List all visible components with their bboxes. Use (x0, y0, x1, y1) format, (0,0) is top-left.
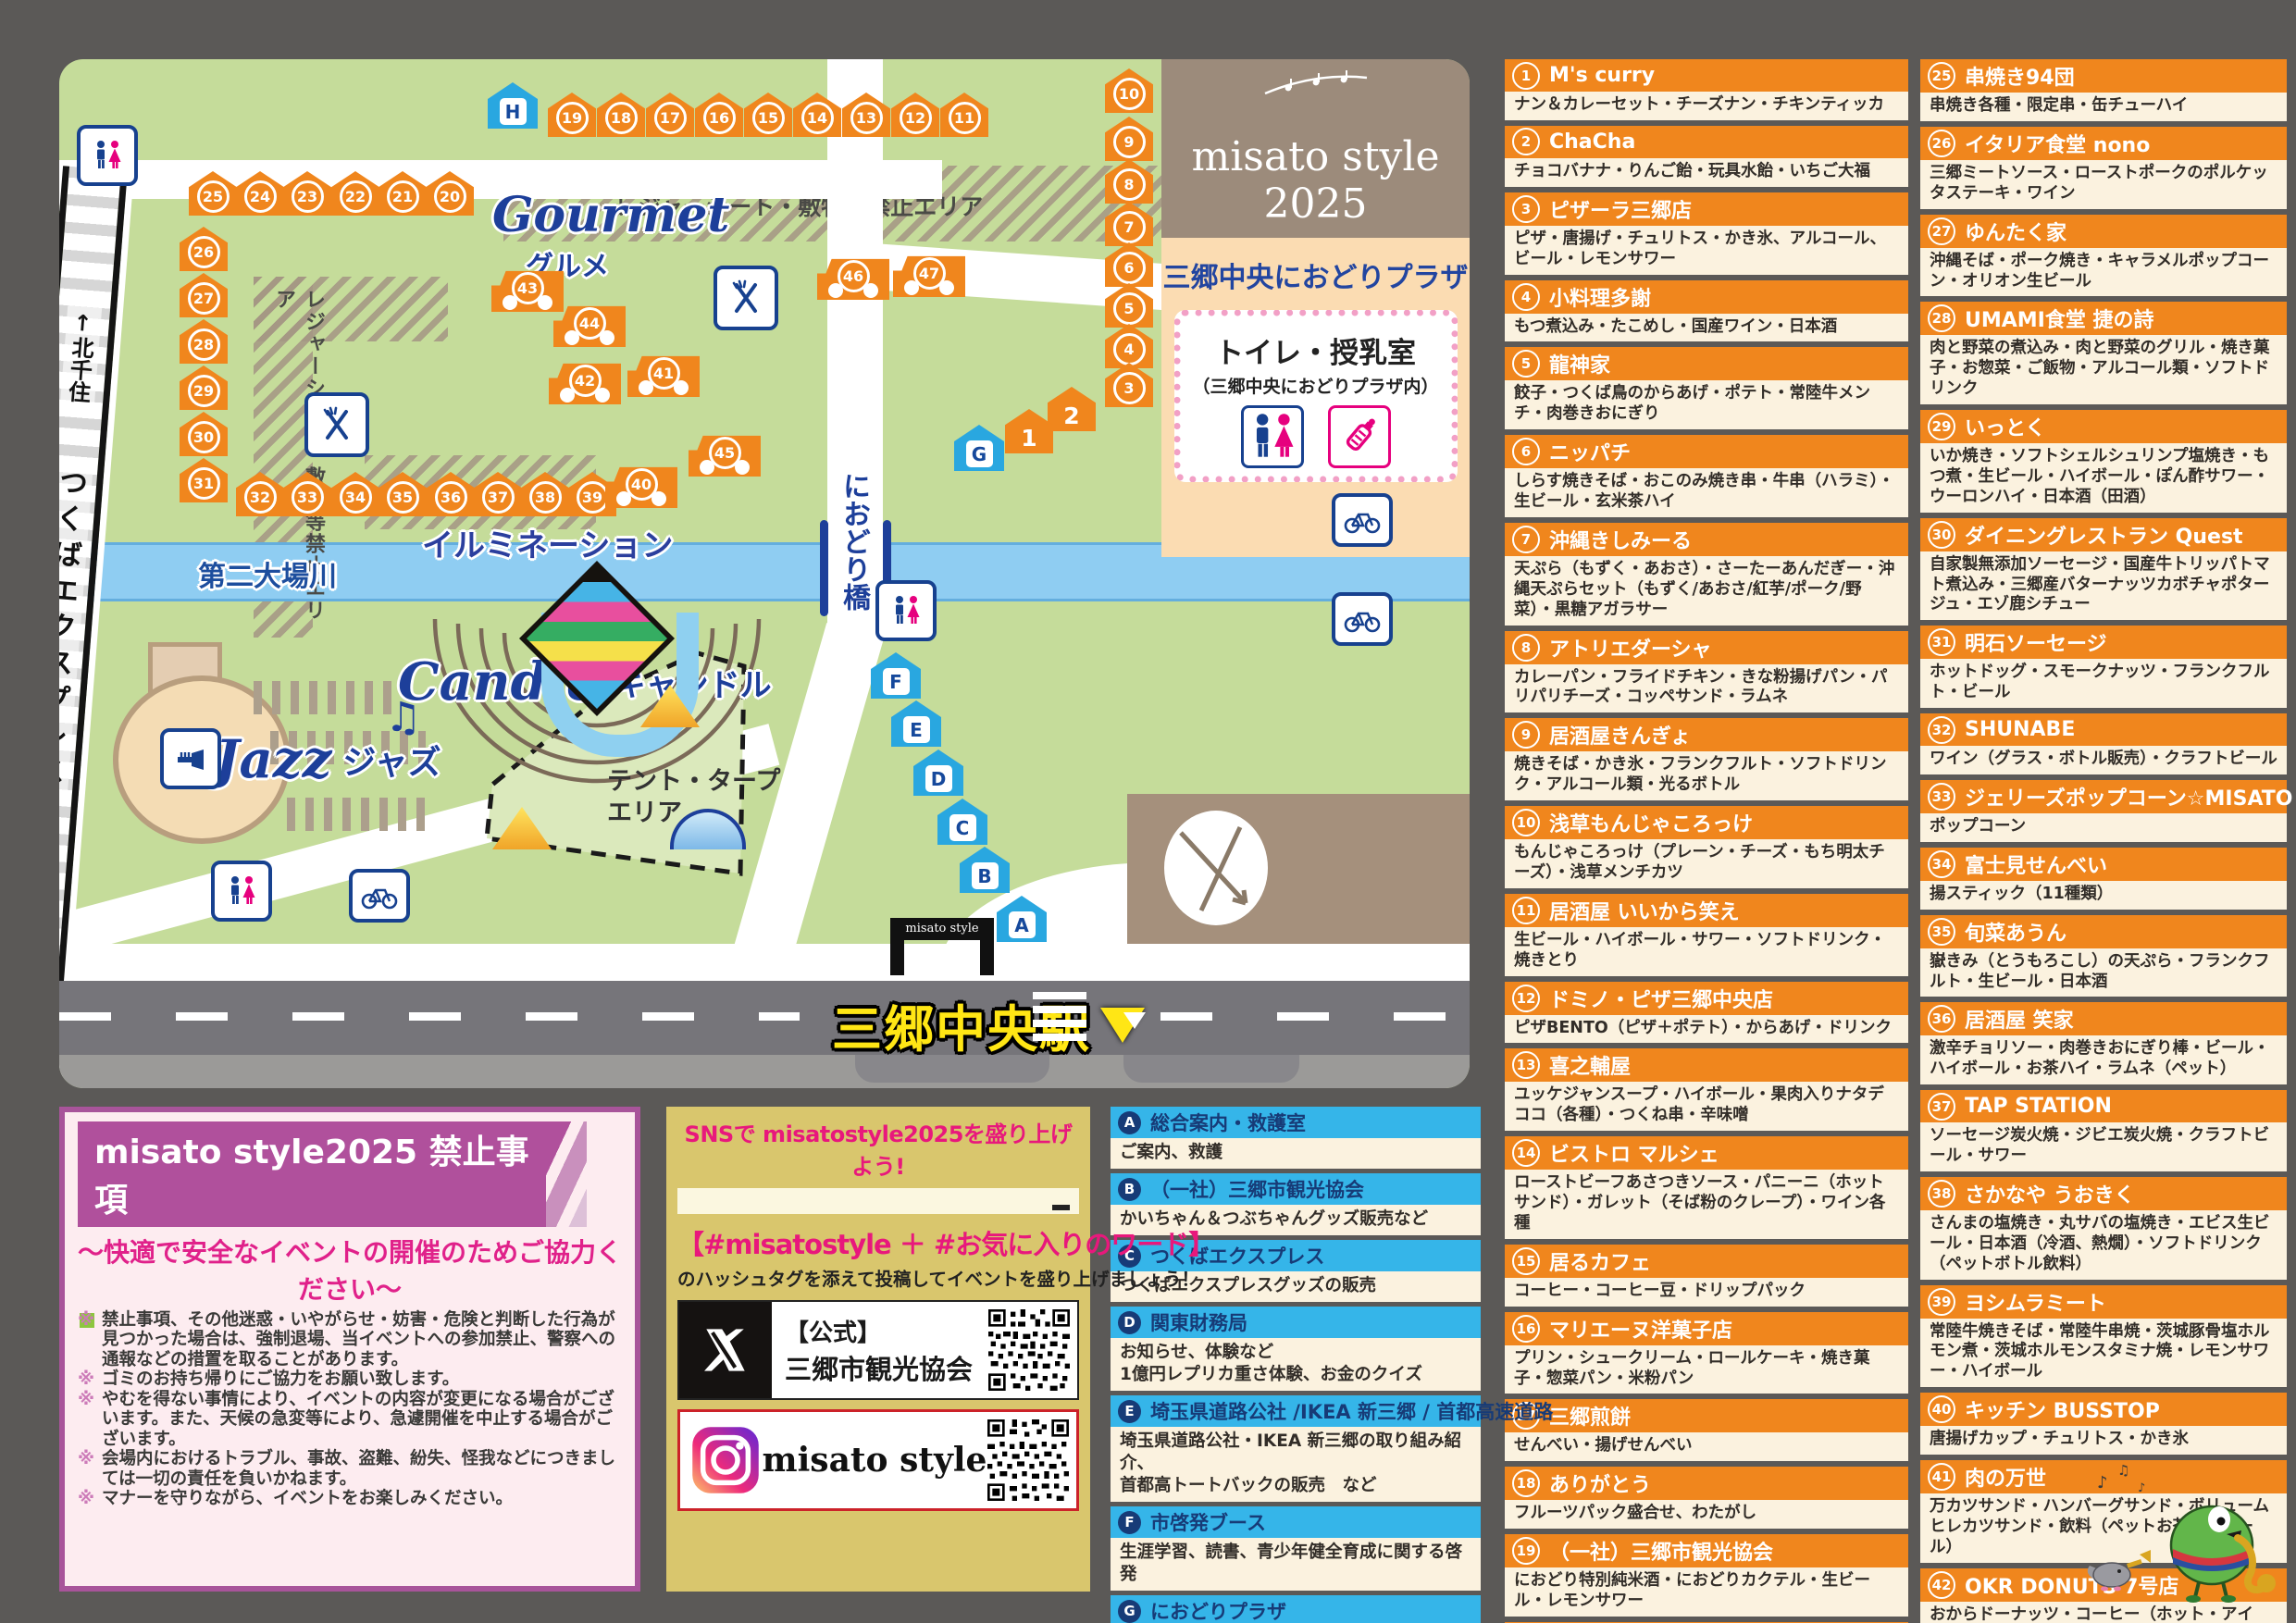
vendor-menu: ピザBENTO（ピザ＋ポテト）・からあげ・ドリンク (1505, 1015, 1908, 1044)
vendor-menu: 唐揚げカップ・チュリトス・かき氷 (1920, 1426, 2287, 1455)
booth-letter-badge: F (1118, 1511, 1141, 1534)
booth-list: A 総合案内・救護室 ご案内、救護 B （一社）三郷市観光協会 かいちゃん＆つぶ… (1111, 1107, 1481, 1623)
svg-text:♫: ♫ (2117, 1462, 2129, 1479)
prohibited-title: misato style2025 禁止事項 (78, 1121, 546, 1227)
prohibited-panel: misato style2025 禁止事項 ～快適で安全なイベントの開催のためご… (59, 1107, 640, 1592)
vendor-item: 31 明石ソーセージ ホットドッグ・スモークナッツ・フランクフルト・ビール (1920, 626, 2287, 708)
stall-number: 22 (340, 180, 372, 213)
arrow-up-icon: ↑ (68, 309, 96, 337)
stall-number: 8 (1113, 168, 1146, 201)
booth-letter-badge: A (1118, 1111, 1141, 1134)
svg-text:♪: ♪ (2138, 1481, 2145, 1495)
vendor-name: 肉の万世 (1965, 1462, 2046, 1492)
map-title-block: misato style 2025 会場図 (1161, 59, 1470, 238)
stall-marker: D (913, 750, 963, 796)
vendor-number-badge: 18 (1512, 1469, 1540, 1497)
vendor-item: 6 ニッパチ しらす焼きそば・おこのみ焼き串・牛串（ハラミ）・生ビール・玄米茶ハ… (1505, 435, 1908, 517)
nursing-bottle-icon (1328, 405, 1391, 468)
note-marker: ※ (78, 1449, 94, 1468)
vendor-name: ピザーラ三郷店 (1549, 194, 1692, 224)
vendor-number-badge: 5 (1512, 350, 1540, 378)
stall-number: 44 (574, 307, 606, 340)
vendor-name: 居酒屋 いいから笑え (1549, 896, 1740, 925)
lane-dashes-right (1160, 1012, 1470, 1021)
booth-name: 総合案内・救護室 (1150, 1109, 1306, 1136)
vendor-number-badge: 40 (1928, 1395, 1955, 1423)
stall-number: 36 (435, 481, 467, 514)
vendor-number-badge: 6 (1512, 438, 1540, 465)
vendor-name: ありがとう (1549, 1468, 1651, 1498)
vendor-name: 富士見せんべい (1965, 849, 2107, 879)
stall-number: E (903, 716, 930, 743)
vendor-menu: ユッケジャンスープ・ハイボール・果肉入りナタデココ（各種）・つくね串・辛味噌 (1505, 1082, 1908, 1131)
stall-number: 35 (387, 481, 419, 514)
vendor-number-badge: 28 (1928, 304, 1955, 332)
stall-number: 32 (244, 481, 277, 514)
vendor-number-badge: 32 (1928, 716, 1955, 744)
vendor-menu: せんべい・揚げせんべい (1505, 1432, 1908, 1461)
stall-number: 1 (1021, 427, 1036, 450)
vendor-item: 11 居酒屋 いいから笑え 生ビール・ハイボール・サワー・ソフトドリンク・焼きと… (1505, 894, 1908, 976)
booth-item: F 市啓発ブース 生涯学習、読書、青少年健全育成に関する啓発 (1111, 1506, 1481, 1591)
stall-number: 29 (188, 375, 220, 407)
booth-desc: 生涯学習、読書、青少年健全育成に関する啓発 (1111, 1538, 1481, 1591)
vendor-number-badge: 4 (1512, 283, 1540, 311)
booth-item: G におどりプラザ 活動紹介 (1111, 1595, 1481, 1623)
vendor-menu: カレーパン・フライドチキン・きな粉揚げパン・パリパリチーズ・コッペサンド・ラムネ (1505, 664, 1908, 713)
instagram-icon (689, 1424, 762, 1496)
restroom-icon (1241, 405, 1304, 468)
river-label: 第二大場川 (198, 553, 337, 594)
stall-number: 39 (577, 481, 609, 514)
monument-icon (1160, 807, 1272, 929)
food-court-icon (714, 266, 778, 330)
stall-marker: 9 (1105, 117, 1153, 161)
vendor-name: 串焼き94団 (1965, 61, 2075, 91)
vendor-number-badge: 7 (1512, 526, 1540, 553)
vendor-menu: ソーセージ炭火焼・ジビエ炭火焼・クラフトビール・サワー (1920, 1122, 2287, 1171)
food-court-icon (304, 392, 369, 457)
vendor-name: ドミノ・ピザ三郷中央店 (1549, 984, 1773, 1013)
vendor-menu: 常陸牛焼きそば・常陸牛串焼・茨城豚骨塩ホルモン煮・茨城ホルモンスタミナ焼・レモン… (1920, 1319, 2287, 1388)
vendor-item: 9 居酒屋きんぎょ 焼きそば・かき氷・フランクフルト・ソフトドリンク・アルコール… (1505, 718, 1908, 800)
bicycle-parking-icon (1332, 592, 1393, 646)
stall-number: F (883, 668, 910, 695)
stall-marker: F (871, 652, 921, 699)
venue-map: レジャーシート・敷物等禁止エリア レジャーシート・敷物等禁止エリア 第二大場川 … (59, 59, 1470, 1088)
stall-marker: G (954, 425, 1004, 471)
vendor-item: 3 ピザーラ三郷店 ピザ・唐揚げ・チュリトス・かき氷、アルコール、ビール・レモン… (1505, 192, 1908, 275)
vendor-menu: ホットドッグ・スモークナッツ・フランクフルト・ビール (1920, 659, 2287, 708)
vendor-number-badge: 14 (1512, 1139, 1540, 1167)
station-entrance (1123, 1055, 1299, 1083)
building-block (1127, 794, 1470, 944)
stall-marker: 11 (940, 93, 988, 137)
stall-number: 21 (387, 180, 419, 213)
vendor-menu: 揚スティック（11種類） (1920, 881, 2287, 910)
sns-note-2: のハッシュタグを添えて投稿してイベントを盛り上げましょう！ (677, 1264, 1079, 1291)
vendor-item: 27 ゆんたく家 沖縄そば・ポーク焼き・キャラメルポップコーン・オリオン生ビール (1920, 215, 2287, 297)
stall-marker: 17 (646, 93, 694, 137)
vendor-number-badge: 11 (1512, 897, 1540, 924)
x-qr-code (988, 1309, 1070, 1391)
prohibited-note: ※ ゴミのお持ち帰りにご協力をお願い致します。 (78, 1369, 622, 1389)
bridge-rail-left (820, 520, 828, 616)
vendor-number-badge: 16 (1512, 1315, 1540, 1343)
stall-marker: 15 (744, 93, 792, 137)
vendor-number-badge: 19 (1512, 1537, 1540, 1565)
vendor-name: ニッパチ (1549, 437, 1631, 466)
sns-note-1: 【#misatostyle ＋ #お気に入りのワード】 (677, 1223, 1079, 1262)
vendor-item: 12 ドミノ・ピザ三郷中央店 ピザBENTO（ピザ＋ポテト）・からあげ・ドリンク (1505, 982, 1908, 1044)
vendor-number-badge: 29 (1928, 413, 1955, 440)
stall-number: 24 (244, 180, 277, 213)
vendor-item: 39 ヨシムラミート 常陸牛焼きそば・常陸牛串焼・茨城豚骨塩ホルモン煮・茨城ホル… (1920, 1285, 2287, 1388)
restroom-icon (875, 580, 937, 641)
sns-header: SNSで misatostyle2025を盛り上げよう! (677, 1116, 1079, 1181)
vendor-name: いっとく (1965, 412, 2045, 441)
toilet-box-subtitle: （三郷中央におどりプラザ内） (1181, 373, 1451, 398)
stall-number: 10 (1113, 78, 1146, 110)
vendor-menu: 天ぷら（もずく・あおさ）・さーたーあんだぎー・沖縄天ぷらセット（もずく/あおさ/… (1505, 556, 1908, 626)
vendor-name: 居酒屋 笑家 (1965, 1004, 2074, 1034)
vendor-menu: 肉と野菜の煮込み・肉と野菜のグリル・焼き菓子・お惣菜・ご飯物・アルコール類・ソフ… (1920, 335, 2287, 404)
stall-number: 16 (703, 102, 736, 134)
vendor-item: 2 ChaCha チョコバナナ・りんご飴・玩具水飴・いちご大福 (1505, 126, 1908, 187)
stall-number: 2 (1063, 404, 1079, 427)
stall-marker: 4 (1105, 324, 1153, 368)
vendor-number-badge: 1 (1512, 62, 1540, 90)
vendor-menu: におどり特別純米酒・におどりカクテル・生ビール・レモンサワー (1505, 1567, 1908, 1617)
vendor-list-2-items: 25 串焼き94団 串焼き各種・限定串・缶チューハイ 26 イタリア食堂 non… (1920, 59, 2287, 1623)
vendor-menu: 串焼き各種・限定串・缶チューハイ (1920, 93, 2287, 121)
vendor-item: 30 ダイニングレストラン Quest 自家製無添加ソーセージ・国産牛トリッパト… (1920, 518, 2287, 621)
vendor-name: 喜之輔屋 (1549, 1050, 1631, 1080)
stall-number: 31 (188, 467, 220, 500)
trumpet-icon (160, 728, 221, 789)
stall-marker: 12 (891, 93, 939, 137)
event-title: misato style 2025 (1161, 133, 1470, 228)
vendor-item: 37 TAP STATION ソーセージ炭火焼・ジビエ炭火焼・クラフトビール・サ… (1920, 1090, 2287, 1171)
vendor-menu: 生ビール・ハイボール・サワー・ソフトドリンク・焼きとり (1505, 927, 1908, 976)
stall-number: 41 (648, 357, 680, 390)
misato-style-gate: misato style (890, 918, 994, 975)
vendor-number-badge: 41 (1928, 1463, 1955, 1491)
booth-item: A 総合案内・救護室 ご案内、救護 (1111, 1107, 1481, 1169)
vendor-name: 小料理多謝 (1549, 282, 1651, 312)
vendor-item: 17 三郷煎餅 せんべい・揚げせんべい (1505, 1399, 1908, 1461)
stall-number: 9 (1113, 126, 1146, 158)
vendor-item: 16 マリエーヌ洋菓子店 プリン・シュークリーム・ロールケーキ・焼き菓子・惣菜パ… (1505, 1312, 1908, 1394)
booth-letter-badge: D (1118, 1311, 1141, 1334)
music-note-icon: ♫ (385, 694, 421, 741)
vendor-item: 33 ジェリーズポップコーン☆MISATO ポップコーン (1920, 780, 2287, 842)
stall-marker: C (937, 799, 987, 845)
vendor-number-badge: 2 (1512, 128, 1540, 155)
stall-number: 33 (292, 481, 324, 514)
booth-name: （一社）三郷市観光協会 (1150, 1175, 1364, 1203)
vendor-name: 浅草もんじゃころっけ (1549, 808, 1753, 837)
vendor-number-badge: 3 (1512, 195, 1540, 223)
vendor-menu: さんまの塩焼き・丸サバの塩焼き・エビス生ビール・日本酒（冷酒、熱燗）・ソフトドリ… (1920, 1210, 2287, 1280)
prohibited-note: ※ やむを得ない事情により、イベントの内容が変更になる場合がございます。また、天… (78, 1390, 622, 1449)
stall-number: 40 (626, 468, 658, 501)
stall-number: 46 (838, 260, 870, 292)
vendor-menu: 三郷ミートソース・ローストポークのポルケッタステーキ・ワイン (1920, 160, 2287, 209)
prohibited-note: ※ マナーを守りながら、イベントをお楽しみください。 (78, 1489, 622, 1508)
gate-sign: misato style (890, 918, 994, 940)
bracket-decoration (1052, 1205, 1070, 1210)
vendor-item: 8 アトリエダーシャ カレーパン・フライドチキン・きな粉揚げパン・パリパリチーズ… (1505, 631, 1908, 713)
stall-number: 18 (605, 102, 638, 134)
vendor-name: 居るカフェ (1549, 1246, 1651, 1276)
stall-number: 26 (188, 236, 220, 268)
booth-desc: お知らせ、体験など 1億円レプリカ重さ体験、お金のクイズ (1111, 1338, 1481, 1391)
vendor-name: SHUNABE (1965, 718, 2075, 741)
instagram-account-box: misato style (677, 1409, 1079, 1511)
booth-item: B （一社）三郷市観光協会 かいちゃん＆つぶちゃんグッズ販売など (1111, 1173, 1481, 1235)
stall-number: 14 (801, 102, 834, 134)
vendor-item: 1 M's curry ナン＆カレーセット・チーズナン・チキンティッカ (1505, 59, 1908, 120)
vendor-number-badge: 8 (1512, 634, 1540, 662)
sns-panel: SNSで misatostyle2025を盛り上げよう! 【#misatosty… (666, 1107, 1090, 1592)
vendor-item: 35 旬菜あうん 嶽きみ（とうもろこし）の天ぷら・フランクフルト・生ビール・日本… (1920, 915, 2287, 997)
vendor-number-badge: 15 (1512, 1247, 1540, 1275)
note-marker: ※ (78, 1390, 94, 1409)
vendor-name: UMAMI食堂 捷の詩 (1965, 304, 2154, 333)
vendor-number-badge: 38 (1928, 1180, 1955, 1208)
note-marker: ※ (78, 1369, 94, 1389)
vendor-menu: 餃子・つくば鳥のからあげ・ポテト・常陸牛メンチ・肉巻きおにぎり (1505, 380, 1908, 429)
vendor-menu: 焼きそば・かき氷・フランクフルト・ソフトドリンク・アルコール類・光るボトル (1505, 751, 1908, 800)
prohibited-subtitle: ～快適で安全なイベントの開催のためご協力ください～ (78, 1233, 622, 1307)
x-logo-icon (679, 1302, 772, 1398)
vendor-item: 40 キッチン BUSSTOP 唐揚げカップ・チュリトス・かき氷 (1920, 1393, 2287, 1455)
stall-marker: B (960, 847, 1010, 893)
vendor-number-badge: 42 (1928, 1571, 1955, 1599)
stall-number: B (972, 862, 999, 889)
vendor-item: 4 小料理多謝 もつ煮込み・たこめし・国産ワイン・日本酒 (1505, 280, 1908, 342)
vendor-menu: もんじゃころっけ（プレーン・チーズ・もち明太チーズ）・浅草メンチカツ (1505, 839, 1908, 888)
stall-number: 42 (569, 365, 602, 397)
vendor-menu: 激辛チョリソー・肉巻きおにぎり棒・ビール・ハイボール・お茶ハイ・ラムネ（ペット） (1920, 1035, 2287, 1084)
vendor-menu: チョコバナナ・りんご飴・玩具水飴・いちご大福 (1505, 158, 1908, 187)
bicycle-parking-icon (349, 869, 410, 923)
vendor-menu: 沖縄そば・ポーク焼き・キャラメルポップコーン・オリオン生ビール (1920, 248, 2287, 297)
stall-number: 12 (900, 102, 932, 134)
vendor-number-badge: 30 (1928, 521, 1955, 549)
railway-name: つくばエクスプレス (59, 460, 93, 798)
stall-number: H (500, 98, 527, 125)
vendor-item: 7 沖縄きしみーる 天ぷら（もずく・あおさ）・さーたーあんだぎー・沖縄天ぷらセッ… (1505, 523, 1908, 626)
flyer-page: レジャーシート・敷物等禁止エリア レジャーシート・敷物等禁止エリア 第二大場川 … (0, 0, 2296, 1623)
vendor-menu: ワイン（グラス・ボトル販売）・クラフトビール (1920, 746, 2287, 774)
small-triangle-icon (1123, 1012, 1146, 1029)
stall-number: 20 (434, 180, 466, 213)
stall-number: 7 (1113, 211, 1146, 243)
bicycle-parking-icon (1332, 493, 1393, 547)
plaza-label: 三郷中央におどりプラザ (1161, 254, 1470, 295)
vendor-name: ジェリーズポップコーン☆MISATO (1965, 782, 2292, 811)
prohibited-notes: ※ 禁止事項、その他迷惑・いやがらせ・妨害・危険と判断した行為が見つかった場合は… (78, 1310, 622, 1509)
stall-number: 3 (1113, 372, 1146, 404)
vendor-item: 14 ビストロ マルシェ ローストビーフあさつきソース・パニーニ（ホットサンド）… (1505, 1136, 1908, 1239)
stall-marker: E (891, 700, 941, 747)
vendor-item: 26 イタリア食堂 nono 三郷ミートソース・ローストポークのポルケッタステー… (1920, 127, 2287, 209)
vendor-name: イタリア食堂 nono (1965, 129, 2150, 158)
vendor-number-badge: 27 (1928, 217, 1955, 245)
vendor-number-badge: 31 (1928, 628, 1955, 656)
vendor-item: 19 （一社）三郷市観光協会 におどり特別純米酒・におどりカクテル・生ビール・レ… (1505, 1534, 1908, 1617)
vendor-list-1: 1 M's curry ナン＆カレーセット・チーズナン・チキンティッカ 2 Ch… (1505, 59, 1908, 1623)
vendor-name: 龍神家 (1549, 349, 1610, 378)
jazz-seating (254, 681, 402, 714)
vendor-menu: しらす焼きそば・おこのみ焼き串・牛串（ハラミ）・生ビール・玄米茶ハイ (1505, 468, 1908, 517)
vendor-menu: ポップコーン (1920, 813, 2287, 842)
stall-number: A (1009, 911, 1036, 938)
vendor-menu: ナン＆カレーセット・チーズナン・チキンティッカ (1505, 92, 1908, 120)
vendor-number-badge: 26 (1928, 130, 1955, 157)
stall-number: 28 (188, 328, 220, 361)
vendor-menu: コーヒー・コーヒー豆・ドリップパック (1505, 1278, 1908, 1307)
vendor-menu: 嶽きみ（とうもろこし）の天ぷら・フランクフルト・生ビール・日本酒 (1920, 948, 2287, 997)
vendor-menu: ピザ・唐揚げ・チュリトス・かき氷、アルコール、ビール・レモンサワー (1505, 226, 1908, 275)
prohibited-note: ※ 禁止事項、その他迷惑・いやがらせ・妨害・危険と判断した行為が見つかった場合は… (78, 1310, 622, 1369)
vendor-item: 38 さかなや うおきく さんまの塩焼き・丸サバの塩焼き・エビス生ビール・日本酒… (1920, 1177, 2287, 1280)
stall-marker: 30 (180, 412, 228, 456)
stall-marker: 18 (597, 93, 645, 137)
stall-number: 6 (1113, 252, 1146, 284)
bridge-label: におどり橋 (833, 472, 874, 611)
stall-marker: 3 (1105, 363, 1153, 407)
vendor-menu: プリン・シュークリーム・ロールケーキ・焼き菓子・惣菜パン・米粉パン (1505, 1345, 1908, 1394)
stall-number: G (966, 440, 993, 467)
vendor-name: ダイニングレストラン Quest (1965, 520, 2243, 550)
stall-number: C (949, 814, 976, 841)
station-road: 三郷中央駅 (59, 981, 1470, 1055)
vendor-number-badge: 13 (1512, 1051, 1540, 1079)
vendor-number-badge: 33 (1928, 783, 1955, 811)
stall-number: 17 (654, 102, 687, 134)
booth-name: 市啓発ブース (1150, 1508, 1266, 1536)
vendor-name: TAP STATION (1965, 1095, 2112, 1118)
restroom-icon (77, 125, 138, 186)
plaza-block: 三郷中央におどりプラザ トイレ・授乳室 （三郷中央におどりプラザ内） (1161, 238, 1470, 557)
booth-letter-badge: B (1118, 1178, 1141, 1201)
stall-marker: 1 (1005, 409, 1053, 453)
booth-name: 埼玉県道路公社 /IKEA 新三郷 / 首都高速道路 (1150, 1397, 1553, 1425)
vendor-name: 居酒屋きんぎょ (1549, 720, 1691, 750)
vendor-number-badge: 10 (1512, 809, 1540, 836)
vendor-item: 5 龍神家 餃子・つくば鳥のからあげ・ポテト・常陸牛メンチ・肉巻きおにぎり (1505, 347, 1908, 429)
vendor-number-badge: 35 (1928, 918, 1955, 946)
vendor-name: ChaCha (1549, 130, 1635, 154)
vendor-name: M's curry (1549, 64, 1655, 87)
booth-item: D 関東財務局 お知らせ、体験など 1億円レプリカ重さ体験、お金のクイズ (1111, 1307, 1481, 1391)
stall-number: 45 (709, 437, 741, 469)
stall-marker: 26 (180, 227, 228, 271)
prohibited-note: ※ 会場内におけるトラブル、事故、盗難、紛失、怪我などにつきましては一切の責任を… (78, 1449, 622, 1489)
booth-item: E 埼玉県道路公社 /IKEA 新三郷 / 首都高速道路 埼玉県道路公社・IKE… (1111, 1395, 1481, 1502)
booth-letter-badge: G (1118, 1600, 1141, 1623)
stall-number: 47 (913, 257, 946, 290)
vendor-name: ゆんたく家 (1965, 217, 2066, 246)
vendor-menu: ローストビーフあさつきソース・パニーニ（ホットサンド）・ガレット（そば粉のクレー… (1505, 1170, 1908, 1239)
vendor-item: 18 ありがとう フルーツパック盛合せ、わたがし (1505, 1467, 1908, 1529)
x-account-box: 【公式】 三郷市観光協会 (677, 1300, 1079, 1400)
vendor-name: 明石ソーセージ (1965, 627, 2107, 657)
vendor-number-badge: 12 (1512, 985, 1540, 1012)
vendor-name: キッチン BUSSTOP (1965, 1394, 2160, 1424)
vendor-name: 沖縄きしみーる (1549, 525, 1692, 554)
booth-letter-badge: E (1118, 1400, 1141, 1423)
stall-number: 4 (1113, 333, 1146, 365)
stall-number: D (925, 765, 952, 792)
x-account-name: 三郷市観光協会 (785, 1348, 988, 1387)
vendor-number-badge: 39 (1928, 1288, 1955, 1316)
stall-number: 34 (340, 481, 372, 514)
stall-marker: 29 (180, 365, 228, 410)
stall-number: 11 (949, 102, 981, 134)
note-marker: ※ (78, 1489, 94, 1508)
stall-marker: 27 (180, 273, 228, 317)
vendor-number-badge: 34 (1928, 850, 1955, 878)
stall-number: 38 (529, 481, 562, 514)
stall-number: 23 (292, 180, 324, 213)
lane-dashes-left (59, 1012, 800, 1021)
vendor-menu: もつ煮込み・たこめし・国産ワイン・日本酒 (1505, 314, 1908, 342)
sidewalk (59, 944, 1470, 981)
vendor-name: ヨシムラミート (1965, 1287, 2106, 1317)
instagram-account-name: misato style (762, 1441, 987, 1480)
vendor-name: 旬菜あうん (1965, 917, 2066, 947)
stall-marker: 16 (695, 93, 743, 137)
vendor-item: 10 浅草もんじゃころっけ もんじゃころっけ（プレーン・チーズ・もち明太チーズ）… (1505, 806, 1908, 888)
toilet-nursing-box: トイレ・授乳室 （三郷中央におどりプラザ内） (1174, 310, 1458, 482)
stall-marker: 44 (553, 304, 626, 347)
vendor-menu: いか焼き・ソフトシェルシュリンプ塩焼き・もつ煮・生ビール・ハイボール・ぽん酢サワ… (1920, 443, 2287, 513)
stall-number: 19 (556, 102, 589, 134)
stall-number: 43 (512, 272, 544, 304)
vendor-number-badge: 9 (1512, 721, 1540, 749)
station-name: 三郷中央駅 (832, 988, 1145, 1061)
stall-marker: 45 (689, 434, 761, 477)
stall-marker: 41 (627, 354, 700, 397)
hashtag-box (677, 1188, 1079, 1214)
stall-number: 25 (197, 180, 230, 213)
svg-text:♪: ♪ (2097, 1473, 2108, 1493)
stall-marker: H (488, 82, 538, 129)
vendor-item: 29 いっとく いか焼き・ソフトシェルシュリンプ塩焼き・もつ煮・生ビール・ハイボ… (1920, 410, 2287, 513)
vendor-item: 28 UMAMI食堂 捷の詩 肉と野菜の煮込み・肉と野菜のグリル・焼き菓子・お惣… (1920, 302, 2287, 404)
vendor-number-badge: 37 (1928, 1093, 1955, 1121)
vendor-name: マリエーヌ洋菓子店 (1549, 1314, 1732, 1344)
vendor-item: 25 串焼き94団 串焼き各種・限定串・缶チューハイ (1920, 59, 2287, 121)
stall-marker: 31 (180, 458, 228, 502)
vendor-menu: 自家製無添加ソーセージ・国産牛トリッパトマト煮込み・三郷産バターナッツカボチャポ… (1920, 551, 2287, 621)
vendor-item: 36 居酒屋 笑家 激辛チョリソー・肉巻きおにぎり棒・ビール・ハイボール・お茶ハ… (1920, 1002, 2287, 1084)
restroom-icon (211, 861, 272, 922)
stall-number: 27 (188, 282, 220, 315)
stall-marker: 2 (1048, 387, 1096, 431)
booth-desc: ご案内、救護 (1111, 1138, 1481, 1169)
railway-direction: ↑北千住 (59, 305, 101, 408)
vendor-name: さかなや うおきく (1965, 1179, 2135, 1208)
stall-marker: 40 (605, 465, 677, 508)
stall-number: 15 (752, 102, 785, 134)
stall-number: 30 (188, 421, 220, 453)
vendor-name: ビストロ マルシェ (1549, 1138, 1719, 1168)
